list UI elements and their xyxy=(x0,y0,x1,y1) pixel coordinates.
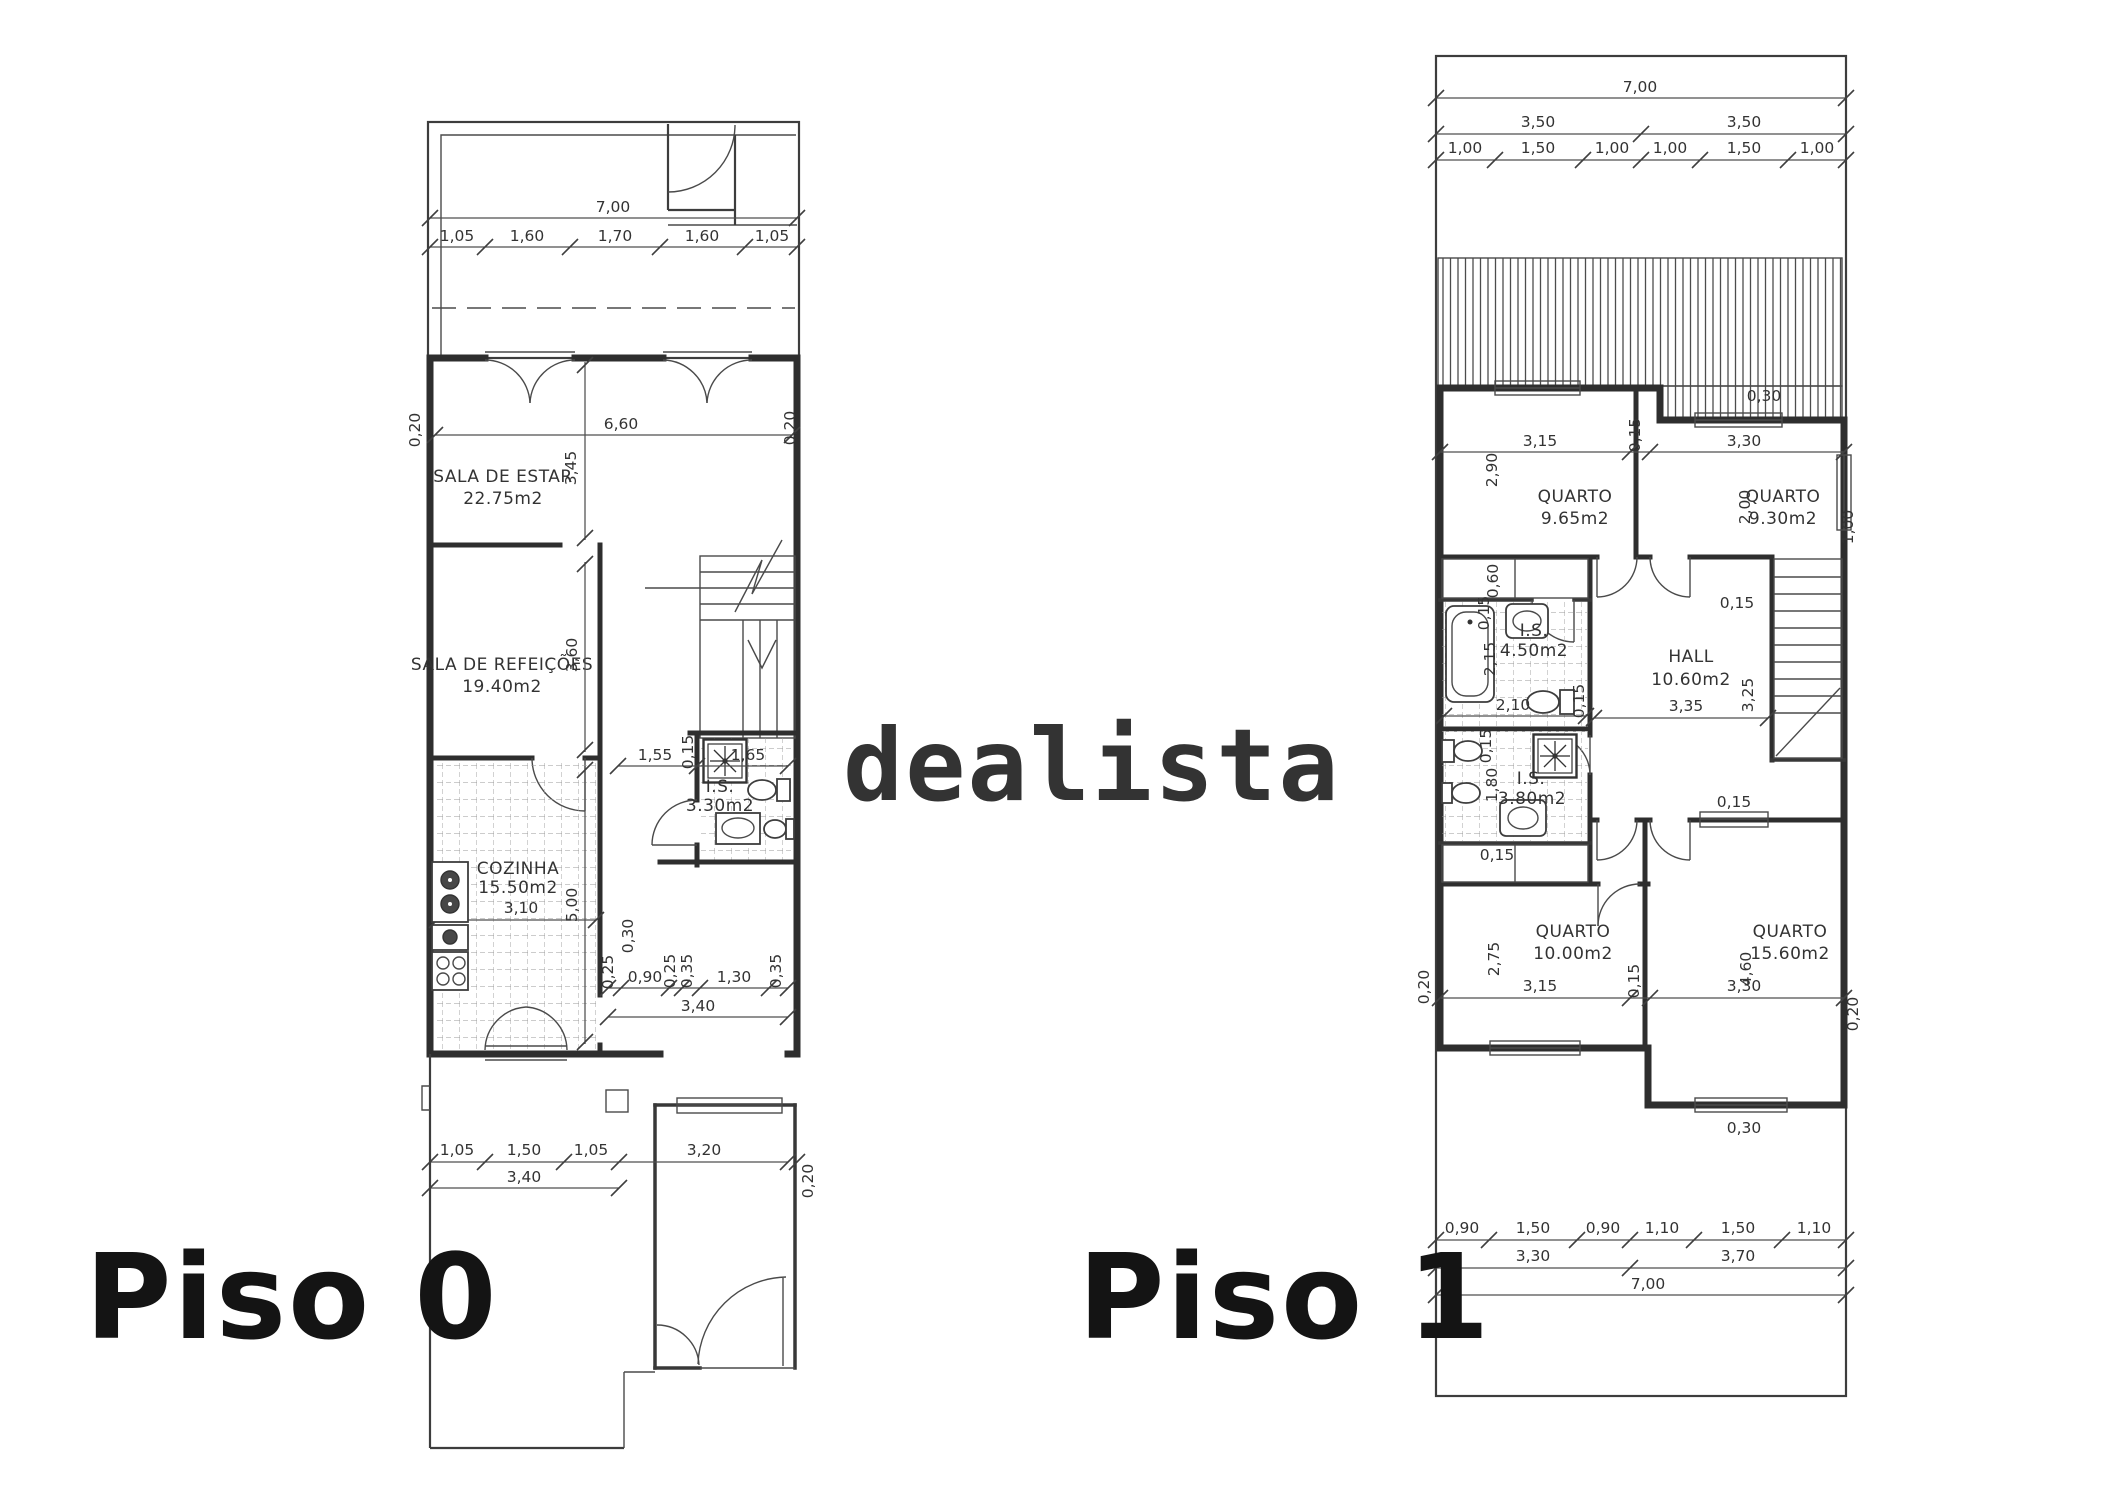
room-label-q2: QUARTO xyxy=(1746,487,1821,507)
kitchen-sink xyxy=(432,862,468,922)
dim: 0,15 xyxy=(1717,793,1752,811)
dim: 0,30 xyxy=(619,919,637,954)
dim: 3,30 xyxy=(1516,1247,1551,1265)
dim: 0,15 xyxy=(679,735,697,770)
dim: 1,50 xyxy=(507,1141,542,1159)
dim: 3,10 xyxy=(504,899,539,917)
room-area-is1: 4.50m2 xyxy=(1500,641,1568,661)
room-label-q1: QUARTO xyxy=(1538,487,1613,507)
dim: 3,70 xyxy=(1721,1247,1756,1265)
toilet-icon xyxy=(1442,740,1482,762)
room-label-sala-estar: SALA DE ESTAR xyxy=(433,467,572,487)
garage xyxy=(655,1098,795,1368)
dim: 3,40 xyxy=(681,997,716,1015)
dim: 2,90 xyxy=(1483,453,1501,488)
dim: 7,00 xyxy=(1623,78,1658,96)
dim: 0,15 xyxy=(1570,684,1588,719)
door-q3 xyxy=(1598,884,1640,926)
bathroom-floor0: I.S. 3.30m2 xyxy=(652,733,797,865)
room-label-q4: QUARTO xyxy=(1753,922,1828,942)
bidet-icon xyxy=(764,819,794,839)
dim: 6,60 xyxy=(604,415,639,433)
dim: 2,10 xyxy=(1496,696,1531,714)
dim: 0,15 xyxy=(1625,964,1643,999)
door-q2 xyxy=(1650,557,1690,597)
dim: 0,20 xyxy=(799,1164,817,1199)
dim: 0,60 xyxy=(1484,564,1502,599)
idealista-watermark: dealista xyxy=(843,707,1341,824)
garage-door-arc-large xyxy=(698,1277,786,1364)
room-area-hall: 10.60m2 xyxy=(1651,670,1731,690)
boundary-notch xyxy=(422,1086,430,1110)
dim: 1,05 xyxy=(440,1141,475,1159)
toilet-icon xyxy=(1527,690,1574,714)
room-area-cozinha: 15.50m2 xyxy=(478,878,558,898)
dim: 4,60 xyxy=(1737,952,1755,987)
room-label-hall: HALL xyxy=(1668,647,1713,667)
dim: 1,70 xyxy=(598,227,633,245)
stair-arrow xyxy=(748,640,776,668)
dim: 1,80 xyxy=(1483,768,1501,803)
room-label-is1: I.S. xyxy=(1520,621,1549,641)
dim: 1,00 xyxy=(1595,139,1630,157)
room-label-q3: QUARTO xyxy=(1536,922,1611,942)
room-area-q4: 15.60m2 xyxy=(1750,944,1830,964)
floor0-title: Piso 0 xyxy=(85,1228,498,1366)
dim: 0,30 xyxy=(1747,387,1782,405)
kitchen-stove xyxy=(432,952,468,990)
dim: 1,00 xyxy=(1448,139,1483,157)
dim: 1,10 xyxy=(1645,1219,1680,1237)
dim: 0,15 xyxy=(1626,418,1644,453)
dim: 3,60 xyxy=(563,638,581,673)
staircase-floor0 xyxy=(645,540,795,738)
kitchen-appliance xyxy=(432,925,468,950)
dim: 0,15 xyxy=(1480,846,1515,864)
dim: 1,50 xyxy=(1727,139,1762,157)
dim: 1,05 xyxy=(755,227,790,245)
dim: 0,20 xyxy=(781,411,799,446)
dim: 3,50 xyxy=(1521,113,1556,131)
dim: 1,60 xyxy=(685,227,720,245)
dim: 0,20 xyxy=(1415,970,1433,1005)
roof-hatch: 0,30 xyxy=(1438,258,1842,418)
dim: 0,20 xyxy=(1844,997,1862,1032)
dim: 1,00 xyxy=(1653,139,1688,157)
floor0-bottom-dims: 1,05 1,50 1,05 3,20 3,40 0,20 xyxy=(422,1141,817,1198)
room-label-is0: I.S. xyxy=(706,777,735,797)
garage-door-arc-small xyxy=(657,1325,699,1365)
floor1-title: Piso 1 xyxy=(1078,1228,1491,1366)
floor0-estar-dims: 6,60 0,20 0,20 3,45 xyxy=(406,357,800,546)
entry-door xyxy=(668,124,797,225)
french-door-right xyxy=(663,352,752,403)
dim: 1,10 xyxy=(1797,1219,1832,1237)
dim: 1,00 xyxy=(1839,510,1857,545)
room-area-q1: 9.65m2 xyxy=(1541,509,1609,529)
room-label-is2: I.S. xyxy=(1517,769,1546,789)
bathroom2-floor1: I.S. 3.80m2 xyxy=(1442,731,1588,841)
dim: 0,15 xyxy=(1477,729,1495,764)
dim: 0,15 xyxy=(1720,594,1755,612)
floor1-top-dims: 7,00 3,50 3,50 1,00 1,50 1,00 1,00 1,50 … xyxy=(1428,78,1854,168)
floor0-top-dims: 7,00 1,05 1,60 1,70 1,60 1,05 xyxy=(422,198,805,255)
dim: 1,05 xyxy=(440,227,475,245)
dim: 1,50 xyxy=(1721,1219,1756,1237)
pillar xyxy=(606,1090,628,1112)
dim: 0,15 xyxy=(1475,596,1493,631)
floor1-bottom-dims: 0,90 1,50 0,90 1,10 1,50 1,10 3,30 3,70 … xyxy=(1428,1219,1854,1303)
dim: 2,00 xyxy=(1736,490,1754,525)
room-area-q2: 9.30m2 xyxy=(1749,509,1817,529)
floorplan-canvas: 7,00 1,05 1,60 1,70 1,60 1,05 xyxy=(0,0,2114,1510)
dim: 1,00 xyxy=(1800,139,1835,157)
dim: 0,90 xyxy=(1586,1219,1621,1237)
dim: 3,15 xyxy=(1523,432,1558,450)
dim: 3,15 xyxy=(1523,977,1558,995)
dim: 1,05 xyxy=(574,1141,609,1159)
dim: 2,75 xyxy=(1485,942,1503,977)
floor0-passage-dims: 0,30 0,25 0,90 0,25 0,35 1,30 0,35 3,40 xyxy=(599,919,796,1025)
stair-break-line xyxy=(1776,688,1840,756)
dim: 7,00 xyxy=(596,198,631,216)
dim: 3,40 xyxy=(507,1168,542,1186)
floorplan-page: 7,00 1,05 1,60 1,70 1,60 1,05 xyxy=(0,0,2114,1510)
toilet-icon xyxy=(748,779,790,801)
dim: 0,90 xyxy=(628,968,663,986)
dim: 1,65 xyxy=(731,746,766,764)
room-area-refeicoes: 19.40m2 xyxy=(462,677,542,697)
french-door-left xyxy=(485,352,575,403)
stair-break-line xyxy=(735,540,782,612)
dim: 3,25 xyxy=(1739,678,1757,713)
room-area-q3: 10.00m2 xyxy=(1533,944,1613,964)
room-area-is0: 3.30m2 xyxy=(686,796,754,816)
door-hall-left xyxy=(1597,820,1637,860)
floor1-plan: 7,00 3,50 3,50 1,00 1,50 1,00 1,00 1,50 … xyxy=(1415,56,1862,1396)
dim: 7,00 xyxy=(1631,1275,1666,1293)
closet-lower xyxy=(1442,845,1588,882)
dim: 1,30 xyxy=(717,968,752,986)
dim: 0,35 xyxy=(678,954,696,989)
dim: 3,35 xyxy=(1669,697,1704,715)
dim: 3,50 xyxy=(1727,113,1762,131)
staircase-floor1 xyxy=(1774,559,1842,758)
dim: 0,25 xyxy=(599,955,617,990)
dim: 0,30 xyxy=(1727,1119,1762,1137)
dim: 1,50 xyxy=(1521,139,1556,157)
dim: 3,20 xyxy=(687,1141,722,1159)
dim: 1,55 xyxy=(638,746,673,764)
door-q1 xyxy=(1597,557,1637,597)
room-label-cozinha: COZINHA xyxy=(477,859,560,879)
closet-upper xyxy=(1442,559,1588,598)
bidet-icon xyxy=(1442,783,1480,803)
dim: 0,35 xyxy=(767,954,785,989)
dim: 0,25 xyxy=(661,954,679,989)
sink-icon xyxy=(716,813,760,844)
dim: 3,30 xyxy=(1727,432,1762,450)
dim: 0,20 xyxy=(406,413,424,448)
room-area-is2: 3.80m2 xyxy=(1498,789,1566,809)
room-area-sala-estar: 22.75m2 xyxy=(463,489,543,509)
dim: 1,50 xyxy=(1516,1219,1551,1237)
dim: 1,60 xyxy=(510,227,545,245)
dim: 2,15 xyxy=(1481,642,1499,677)
door-hall-right xyxy=(1650,820,1690,860)
dim: 5,00 xyxy=(563,888,581,923)
